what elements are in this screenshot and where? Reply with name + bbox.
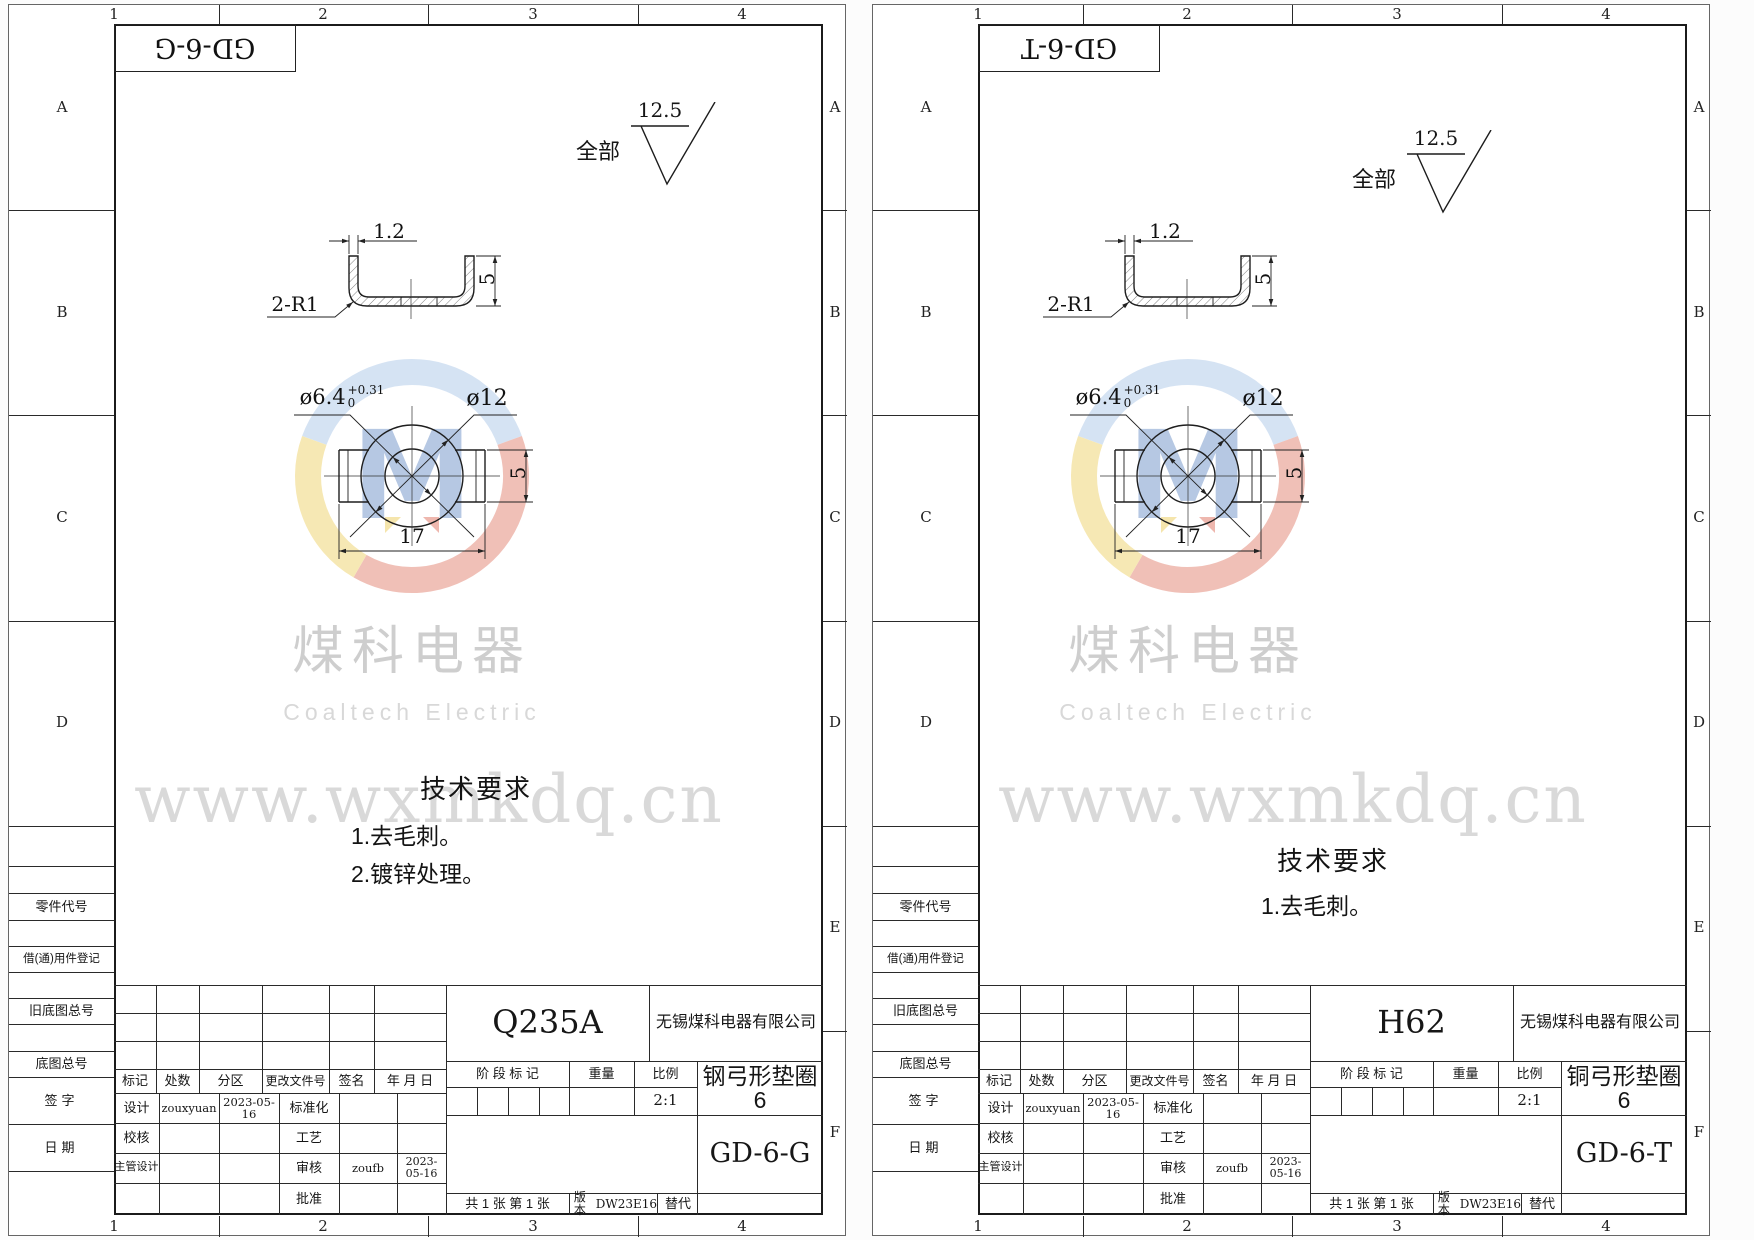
zone-tick xyxy=(428,5,429,24)
titleblock-line xyxy=(508,1087,509,1115)
label-design: 设计 xyxy=(978,1093,1023,1123)
margin-line xyxy=(9,866,114,867)
tech-requirement-item: 2.镀锌处理。 xyxy=(351,855,485,889)
drawing-sheet-left: 1 2 3 4 1 2 3 4 A B C D A B C D E F GD-6… xyxy=(8,4,846,1236)
watermark-url: www.wxmkdq.cn xyxy=(993,761,1593,838)
design-date: 2023-05-16 xyxy=(1083,1093,1143,1123)
material-cell: Q235A xyxy=(446,985,649,1061)
dim-hole-value: ø6.4 xyxy=(1076,385,1122,409)
company-cell: 无锡煤科电器有限公司 xyxy=(649,985,823,1061)
label-part-code: 零件代号 xyxy=(873,893,978,920)
zone-tick xyxy=(873,826,978,827)
dim-thickness: 1.2 xyxy=(361,221,417,241)
zone-tick xyxy=(1292,5,1293,24)
drawing-sheet-right: 1 2 3 4 1 2 3 4 A B C D A B C D E F GD-6… xyxy=(872,4,1710,1236)
dim-hole-diameter: ø6.4 +0.31 0 xyxy=(277,383,407,411)
zone-tick xyxy=(1083,5,1084,24)
zone-letter: D xyxy=(824,711,846,735)
auditor-name: zoufb xyxy=(1203,1153,1261,1183)
label-count: 处数 xyxy=(1020,1069,1063,1093)
watermark-cn: 煤科电器 xyxy=(262,609,562,684)
part-name-cell: 铜弓形垫圈6 xyxy=(1561,1061,1687,1115)
label-change-doc: 更改文件号 xyxy=(1126,1069,1193,1093)
label-old-base-no: 旧底图总号 xyxy=(9,998,114,1024)
zone-tick xyxy=(823,826,847,827)
zone-number: 4 xyxy=(1586,1218,1626,1235)
label-check: 校核 xyxy=(114,1123,159,1153)
zone-tick xyxy=(873,415,978,416)
label-scale: 比例 xyxy=(1498,1061,1561,1087)
titleblock-line xyxy=(477,1087,478,1115)
version-value: DW23E16 xyxy=(596,1198,657,1211)
dim-outer-diameter: ø12 xyxy=(455,385,519,411)
label-replace: 替代 xyxy=(1521,1193,1687,1215)
zone-tick xyxy=(638,1216,639,1237)
zone-tick xyxy=(428,1216,429,1237)
surface-finish-mark: 全部 12.5 xyxy=(1345,128,1505,224)
zone-letter: B xyxy=(893,301,959,325)
zone-number: 1 xyxy=(94,1218,134,1235)
label-base-no: 底图总号 xyxy=(9,1051,114,1077)
tech-requirements-title: 技术要求 xyxy=(1243,841,1423,878)
titleblock-line xyxy=(978,1013,1310,1014)
margin-line xyxy=(873,972,978,973)
zone-number: 1 xyxy=(94,6,134,23)
margin-line xyxy=(873,1171,978,1172)
margin-line xyxy=(873,1024,978,1025)
zone-number: 3 xyxy=(513,6,553,23)
part-name-cell: 钢弓形垫圈6 xyxy=(697,1061,823,1115)
zone-tick xyxy=(1502,1216,1503,1237)
label-sign: 签字 xyxy=(9,1077,114,1124)
label-process: 工艺 xyxy=(1143,1123,1203,1153)
zone-letter: A xyxy=(1688,96,1710,120)
zone-number: 4 xyxy=(722,6,762,23)
zone-number: 3 xyxy=(513,1218,553,1235)
dim-total-width: 17 xyxy=(394,525,430,547)
titleblock-line xyxy=(539,1087,540,1115)
zone-tick xyxy=(1687,210,1711,211)
zone-letter: D xyxy=(893,711,959,735)
zone-letter: E xyxy=(1688,916,1710,940)
zone-tick xyxy=(1292,1216,1293,1237)
dim-corner-radius: 2-R1 xyxy=(1033,293,1109,315)
titleblock-line xyxy=(114,1013,446,1014)
zone-tick xyxy=(1687,826,1711,827)
zone-number: 2 xyxy=(303,6,343,23)
label-stage-mark: 阶 段 标 记 xyxy=(1310,1061,1433,1087)
zone-letter: D xyxy=(29,711,95,735)
zone-tick xyxy=(873,621,978,622)
titleblock-line xyxy=(1372,1087,1373,1115)
dim-total-width: 17 xyxy=(1170,525,1206,547)
zone-tick xyxy=(823,415,847,416)
zone-number: 3 xyxy=(1377,1218,1417,1235)
dim-corner-radius: 2-R1 xyxy=(257,293,333,315)
zone-tick xyxy=(219,5,220,24)
margin-line xyxy=(9,1171,114,1172)
dim-leg-height: 5 xyxy=(475,267,499,291)
zone-letter: D xyxy=(1688,711,1710,735)
version-value: DW23E16 xyxy=(1460,1198,1521,1211)
surface-finish-value: 12.5 xyxy=(627,98,693,122)
zone-number: 4 xyxy=(722,1218,762,1235)
zone-number: 2 xyxy=(1167,1218,1207,1235)
label-approve: 批准 xyxy=(279,1183,339,1215)
design-date: 2023-05-16 xyxy=(219,1093,279,1123)
label-change-doc: 更改文件号 xyxy=(262,1069,329,1093)
tech-requirement-item: 1.去毛刺。 xyxy=(351,817,462,851)
label-weight: 重量 xyxy=(569,1061,634,1087)
label-signature: 签名 xyxy=(1193,1069,1238,1093)
label-borrow-reg: 借(通)用件登记 xyxy=(873,946,978,972)
dim-hole-tolerance: +0.31 0 xyxy=(1124,384,1161,409)
zone-number: 2 xyxy=(303,1218,343,1235)
material-cell: H62 xyxy=(1310,985,1513,1061)
label-design: 设计 xyxy=(114,1093,159,1123)
zone-tick xyxy=(1687,621,1711,622)
label-old-base-no: 旧底图总号 xyxy=(873,998,978,1024)
label-base-no: 底图总号 xyxy=(873,1051,978,1077)
zone-letter: C xyxy=(893,506,959,530)
watermark-en: Coaltech Electric xyxy=(262,699,562,726)
auditor-name: zoufb xyxy=(339,1153,397,1183)
zone-tick xyxy=(219,1216,220,1237)
tech-requirement-item: 1.去毛刺。 xyxy=(1261,887,1372,921)
zone-tick xyxy=(823,1031,847,1032)
zone-letter: C xyxy=(824,506,846,530)
zone-tick xyxy=(9,826,114,827)
dim-tab-height: 5 xyxy=(1282,461,1306,485)
surface-scope-label: 全部 xyxy=(569,138,627,166)
margin-line xyxy=(873,866,978,867)
zone-letter: A xyxy=(824,96,846,120)
label-audit: 审核 xyxy=(279,1153,339,1183)
dim-hole-diameter: ø6.4 +0.31 0 xyxy=(1053,383,1183,411)
zone-tick xyxy=(1687,1031,1711,1032)
label-audit: 审核 xyxy=(1143,1153,1203,1183)
designer-name: zouxyuan xyxy=(1023,1093,1083,1123)
label-chief-design: 主管设计 xyxy=(978,1153,1023,1183)
margin-line xyxy=(9,972,114,973)
dim-leg-height: 5 xyxy=(1251,267,1275,291)
label-signature: 签名 xyxy=(329,1069,374,1093)
version-cell: 版本 DW23E16 xyxy=(569,1193,657,1215)
zone-letter: A xyxy=(29,96,95,120)
zone-number: 1 xyxy=(958,6,998,23)
zone-letter: C xyxy=(29,506,95,530)
label-count: 处数 xyxy=(156,1069,199,1093)
dim-hole-tolerance: +0.31 0 xyxy=(348,384,385,409)
zone-tick xyxy=(823,621,847,622)
version-cell: 版本 DW23E16 xyxy=(1433,1193,1521,1215)
zone-letter: F xyxy=(824,1121,846,1145)
surface-finish-mark: 全部 12.5 xyxy=(569,100,729,196)
titleblock-line xyxy=(1341,1087,1342,1115)
label-stage-mark: 阶 段 标 记 xyxy=(446,1061,569,1087)
drawing-number-cell: GD-6-G xyxy=(697,1115,823,1193)
zone-tick xyxy=(1687,415,1711,416)
titleblock-line xyxy=(978,1041,1310,1042)
zone-letter: C xyxy=(1688,506,1710,530)
label-replace: 替代 xyxy=(657,1193,823,1215)
label-standardize: 标准化 xyxy=(279,1093,339,1123)
part-views: M 煤科电器 Coaltech Electric xyxy=(249,221,569,741)
label-process: 工艺 xyxy=(279,1123,339,1153)
drawing-number-cell: GD-6-T xyxy=(1561,1115,1687,1193)
label-zone: 分区 xyxy=(199,1069,262,1093)
zone-letter: B xyxy=(824,301,846,325)
label-scale: 比例 xyxy=(634,1061,697,1087)
zone-tick xyxy=(9,210,114,211)
zone-tick xyxy=(9,415,114,416)
designer-name: zouxyuan xyxy=(159,1093,219,1123)
surface-scope-label: 全部 xyxy=(1345,166,1403,194)
zone-tick xyxy=(9,621,114,622)
label-sign: 签字 xyxy=(873,1077,978,1124)
label-mark: 标记 xyxy=(978,1069,1020,1093)
zone-letter: B xyxy=(1688,301,1710,325)
dim-outer-diameter: ø12 xyxy=(1231,385,1295,411)
zone-tick xyxy=(1083,1216,1084,1237)
label-version: 版本 xyxy=(569,1191,591,1216)
zone-number: 2 xyxy=(1167,6,1207,23)
label-check: 校核 xyxy=(978,1123,1023,1153)
surface-finish-value: 12.5 xyxy=(1403,126,1469,150)
watermark-en: Coaltech Electric xyxy=(1038,699,1338,726)
watermark-cn: 煤科电器 xyxy=(1038,609,1338,684)
zone-number: 4 xyxy=(1586,6,1626,23)
audit-date: 2023-05-16 xyxy=(1261,1153,1310,1183)
zone-tick xyxy=(638,5,639,24)
doc-number-box: GD-6-G xyxy=(114,24,296,72)
label-date: 日期 xyxy=(873,1124,978,1171)
zone-tick xyxy=(823,210,847,211)
label-version: 版本 xyxy=(1433,1191,1455,1216)
doc-number-box: GD-6-T xyxy=(978,24,1160,72)
label-chief-design: 主管设计 xyxy=(114,1153,159,1183)
dim-tab-height: 5 xyxy=(506,461,530,485)
label-weight: 重量 xyxy=(1433,1061,1498,1087)
label-ymd: 年 月 日 xyxy=(374,1069,446,1093)
margin-line xyxy=(9,920,114,921)
dim-hole-value: ø6.4 xyxy=(300,385,346,409)
dim-thickness: 1.2 xyxy=(1137,221,1193,241)
zone-letter: E xyxy=(824,916,846,940)
zone-tick xyxy=(873,210,978,211)
titleblock-line xyxy=(1403,1087,1404,1115)
scale-value: 2:1 xyxy=(634,1087,697,1115)
zone-number: 3 xyxy=(1377,6,1417,23)
label-zone: 分区 xyxy=(1063,1069,1126,1093)
sheet-count: 共 1 张 第 1 张 xyxy=(446,1193,569,1215)
audit-date: 2023-05-16 xyxy=(397,1153,446,1183)
label-approve: 批准 xyxy=(1143,1183,1203,1215)
drawing-canvas: 1 2 3 4 1 2 3 4 A B C D A B C D E F GD-6… xyxy=(0,0,1754,1240)
zone-letter: F xyxy=(1688,1121,1710,1145)
zone-letter: B xyxy=(29,301,95,325)
label-borrow-reg: 借(通)用件登记 xyxy=(9,946,114,972)
tech-requirements-title: 技术要求 xyxy=(376,769,576,806)
label-part-code: 零件代号 xyxy=(9,893,114,920)
margin-line xyxy=(873,920,978,921)
company-cell: 无锡煤科电器有限公司 xyxy=(1513,985,1687,1061)
zone-letter: A xyxy=(893,96,959,120)
titleblock-line xyxy=(114,1041,446,1042)
zone-tick xyxy=(1502,5,1503,24)
label-date: 日期 xyxy=(9,1124,114,1171)
label-mark: 标记 xyxy=(114,1069,156,1093)
label-ymd: 年 月 日 xyxy=(1238,1069,1310,1093)
scale-value: 2:1 xyxy=(1498,1087,1561,1115)
margin-line xyxy=(9,1024,114,1025)
part-views: M 煤科电器 Coaltech Electric xyxy=(1025,221,1345,741)
zone-number: 1 xyxy=(958,1218,998,1235)
label-standardize: 标准化 xyxy=(1143,1093,1203,1123)
sheet-count: 共 1 张 第 1 张 xyxy=(1310,1193,1433,1215)
